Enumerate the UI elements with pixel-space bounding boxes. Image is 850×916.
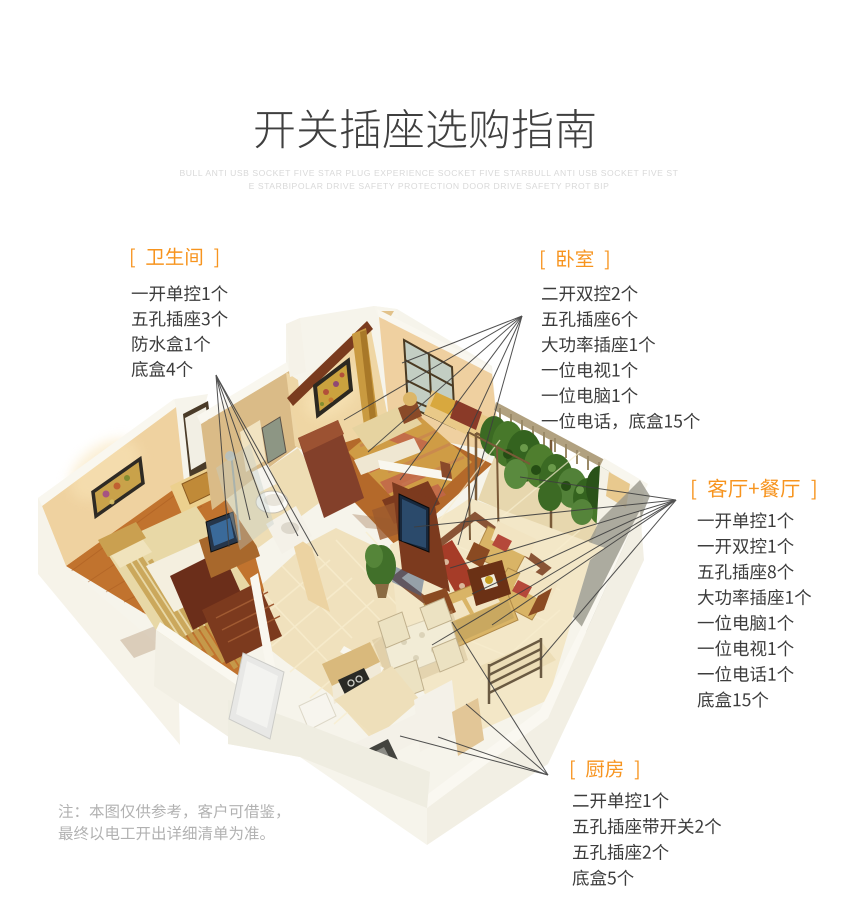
svg-text:E STARBIPOLAR DRIVE SAFETY PRO: E STARBIPOLAR DRIVE SAFETY PROTECTION DO… xyxy=(249,181,610,191)
svg-text:BULL ANTI USB SOCKET FIVE STAR: BULL ANTI USB SOCKET FIVE STAR PLUG EXPE… xyxy=(180,168,679,178)
